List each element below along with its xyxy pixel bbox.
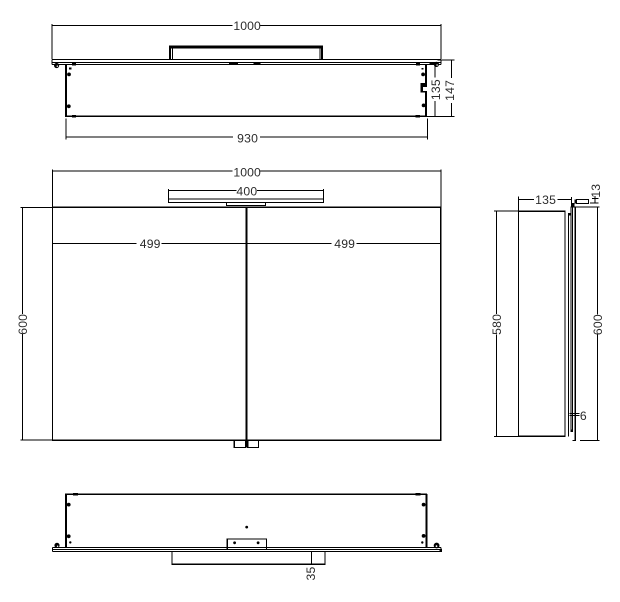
svg-text:600: 600 xyxy=(591,314,605,335)
svg-text:499: 499 xyxy=(140,237,161,251)
svg-text:1000: 1000 xyxy=(233,165,261,179)
svg-text:135: 135 xyxy=(535,193,556,207)
svg-text:135: 135 xyxy=(429,79,443,100)
svg-text:600: 600 xyxy=(16,314,30,335)
svg-text:1000: 1000 xyxy=(233,19,261,33)
svg-text:13: 13 xyxy=(589,184,603,198)
svg-text:580: 580 xyxy=(490,314,504,335)
svg-text:35: 35 xyxy=(304,567,318,581)
svg-text:400: 400 xyxy=(236,184,257,198)
svg-text:6: 6 xyxy=(580,409,587,423)
svg-text:930: 930 xyxy=(237,131,258,145)
svg-text:147: 147 xyxy=(443,80,457,101)
svg-text:499: 499 xyxy=(334,237,355,251)
